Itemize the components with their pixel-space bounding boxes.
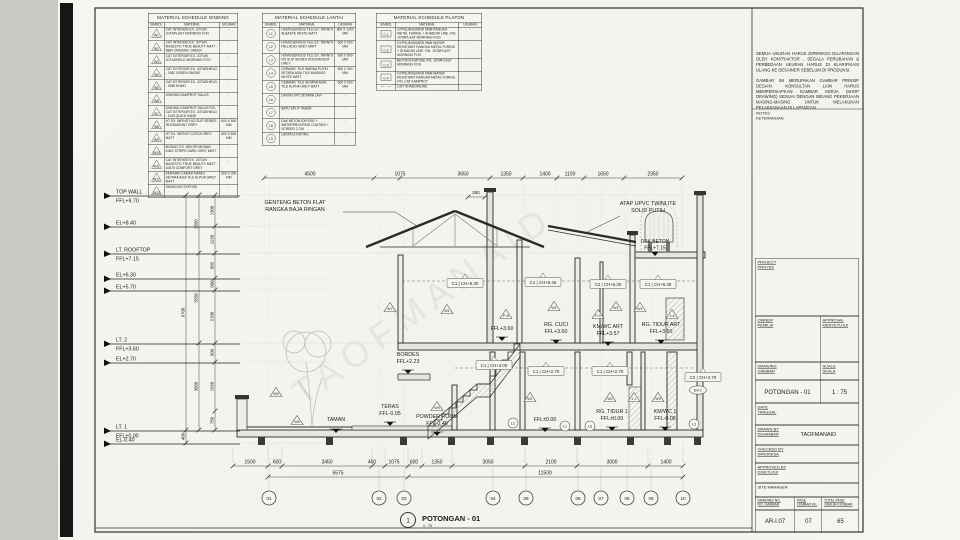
schedule-size: - <box>220 106 238 119</box>
dimension-value: 400 <box>181 432 186 440</box>
material-tag: W9 <box>655 397 660 401</box>
room-name: RG. TIDUR 1 <box>596 409 627 415</box>
room-ffl: FFL-0.40 <box>426 421 448 427</box>
garden-wall-cap <box>235 395 249 399</box>
owner-label-id: PEMILIK <box>758 323 774 328</box>
schedule-material: HT EX. INFINITI NO SLIP SERIES ROCKMOUNT… <box>164 119 219 132</box>
svg-text:W1: W1 <box>154 34 159 38</box>
material-tag: L6 <box>588 424 592 428</box>
dimension-value: 3000 <box>606 460 617 466</box>
grid-bubble-label: 08 <box>624 496 630 501</box>
schedule-row: L7 BATU SPLIT TABUR - <box>262 106 356 119</box>
approval-label-en: APPROVAL <box>823 318 844 323</box>
schedule-symbol: W11 <box>148 158 164 171</box>
room-name: BORDES <box>397 352 420 358</box>
schedule-row: W13 SKIMCOAT EXPOSE - <box>148 185 238 198</box>
approved-by-label-id: DISETUJUI <box>758 470 779 475</box>
schedule-row: W10 MOSAIC EX. DEKOR MOSAIC KING STRIPE … <box>148 145 238 158</box>
level-value: EL+5.70 <box>116 285 136 291</box>
schedule-size: 600 X 600 MM <box>335 53 356 66</box>
total-page-value: 65 <box>822 518 859 525</box>
schedule-row: L8 DAK BETON EXPOSE + WATERPROOFING COAT… <box>262 119 356 132</box>
material-tag: W2 <box>607 397 612 401</box>
room-ffl: FFL±0.00 <box>534 417 557 423</box>
schedule-symbol: W7 <box>148 106 164 119</box>
schedule-material: CAT INTERIOR EX. JOTUN MAJESTIC TRUE BEA… <box>164 158 219 171</box>
schedule-size: - <box>458 41 481 58</box>
drawing-label-en: DRAWING <box>758 364 777 369</box>
schedule-material: DAK BETON EXPOSE + WATERPROOFING COATING… <box>280 119 335 132</box>
schedule-row: L2 HOMOGENOUS TILE EX. INFINITI PALLADIO… <box>262 40 356 53</box>
schedule-size: - <box>220 40 238 53</box>
page-label-en: PAGE <box>797 499 806 503</box>
date-label-en: DATE <box>758 405 768 410</box>
checked-by-label-id: DIPERIKSA <box>758 452 779 457</box>
level-value: FFL+7.15 <box>116 257 139 263</box>
level-arrow <box>104 224 111 231</box>
room-name: RG. CUCI <box>544 322 568 328</box>
schedule-size: - <box>335 93 356 106</box>
schedule-symbol: L7 <box>262 106 280 119</box>
schedule-row: W5 CAT EXTERIOR EX. JOTASHIELD - 7658 KH… <box>148 80 238 93</box>
schedule-size: - <box>220 54 238 67</box>
dimension-value: 4500 <box>304 172 315 178</box>
material-tag: P-8 <box>503 314 509 318</box>
schedule-size: - <box>220 145 238 158</box>
room-name: KM/WC ART <box>593 324 624 330</box>
dimension-value: 600 <box>410 460 419 466</box>
room-name: POWDER ROOM <box>416 414 458 420</box>
roof-left-label-2: RANGKA BAJA RINGAN <box>265 207 325 213</box>
svg-text:C-4: C-4 <box>384 76 389 80</box>
schedule-row: C-4 GYPSUM BOARD 9MM WATER RESISTANT RAN… <box>376 71 482 84</box>
level-arrow <box>104 441 111 448</box>
dak-slab <box>630 252 705 258</box>
dimension-value: 1300 <box>210 205 215 215</box>
grid-bubble-label: 09 <box>648 496 654 501</box>
svg-text:W3: W3 <box>154 60 159 64</box>
schedule-material: CAT EXTERIOR EX. JOTUN JOTASHIELD MORNIN… <box>164 54 219 67</box>
roof-left-leader <box>343 212 417 226</box>
date-box: DATETANGGAL <box>755 403 859 425</box>
level2-slab <box>398 343 703 350</box>
ffl-marker <box>405 370 412 374</box>
svg-text:W2: W2 <box>154 47 159 51</box>
dimension-value: 2100 <box>545 460 556 466</box>
svg-text:C-2: C-2 <box>384 48 389 52</box>
schedule-material: CERAMIC TILE WARNA PUTIH SETARA ASIA TIL… <box>280 67 335 80</box>
room-ffl: FFL+3.60 <box>491 326 514 332</box>
level-arrow <box>104 251 111 258</box>
schedule-size: - <box>220 185 238 198</box>
svg-text:W6: W6 <box>154 99 159 103</box>
scale-label-id: SKALA <box>823 369 836 374</box>
level-arrow <box>104 288 111 295</box>
ceiling-tag: C2 | CH+2.70 <box>690 375 717 380</box>
material-tag: W9 <box>434 406 439 410</box>
schedule-material: CAT EXTERIOR EX. JOTASHIELD - 7682 GREEN… <box>164 67 219 80</box>
schedule-material: SKIMCOAT EXPOSE <box>164 185 219 198</box>
dimension-value: 1350 <box>500 172 511 178</box>
svg-text:L9: L9 <box>269 137 273 141</box>
schedule-row: L1 HOMOGENOUS TILE EX. INFINITI ALBASTE … <box>262 27 356 40</box>
title-block-column: SEMUA UKURAN HARUS DIPERIKSA DILAPANGAN … <box>752 8 863 532</box>
sheet-number-header-box: DRAWING NO.NO. GAMBAR PAGELEMBAR KE- TOT… <box>755 497 859 510</box>
material-schedule-plafon: MATERIAL SCHEDULE PLAFONSIMBOLMATERIALUK… <box>376 13 482 90</box>
wall-cap-dak <box>627 231 638 235</box>
page-value: 07 <box>795 518 822 525</box>
schedule-material: BATU SPLIT TABUR <box>280 106 335 119</box>
dimension-value: 1075 <box>388 460 399 466</box>
svg-text:L8: L8 <box>269 124 273 128</box>
schedule-size: - <box>220 67 238 80</box>
dimension-value: 1950 <box>210 381 215 391</box>
site-manager-label: SITE MANAGER <box>758 485 788 490</box>
material-tag: W1 <box>613 306 618 310</box>
schedule-row: W1 CAT INTERIOR EX. JOTUN JOTAPLAST MORN… <box>148 27 238 40</box>
schedule-symbol: W5 <box>148 80 164 93</box>
svg-text:W13: W13 <box>153 191 160 195</box>
drawing-title: 1 POTONGAN - 01 1 : 75 <box>401 513 481 529</box>
dimension-value: 1250 <box>210 234 215 244</box>
schedule-size: - <box>335 106 356 119</box>
schedule-symbol: L2 <box>262 40 280 53</box>
schedule-symbol: W13 <box>148 185 164 198</box>
drawing-title-scale: 1 : 75 <box>423 524 432 528</box>
owner-label-en: OWNER <box>758 318 773 323</box>
material-tag: L1 <box>511 421 515 425</box>
drawing-title-name: POTONGAN - 01 <box>422 514 480 523</box>
svg-text:L4: L4 <box>269 71 273 75</box>
level-value: EL+2.70 <box>116 357 136 363</box>
roof-right-leader <box>587 216 620 232</box>
svg-text:W7: W7 <box>154 112 159 116</box>
material-tag: L3 <box>692 422 696 426</box>
schedule-size: - <box>458 84 481 90</box>
ceiling-tag: C1 | CH+6.30 <box>452 281 479 286</box>
svg-text:L2: L2 <box>269 45 273 49</box>
schedule-size: - <box>220 80 238 93</box>
garden-wall <box>237 399 247 430</box>
schedule-row: W9 HT EX. INFINITI COSTA GREY MATT 600 X… <box>148 132 238 145</box>
svg-text:W4: W4 <box>154 73 159 77</box>
material-tag: W1 <box>637 307 642 311</box>
bordes-slab <box>398 374 430 380</box>
schedule-row: W11 CAT INTERIOR EX. JOTUN MAJESTIC TRUE… <box>148 158 238 171</box>
room-ffl: FFL-0.05 <box>654 416 676 422</box>
room-ffl: FFL+2.23 <box>397 359 420 365</box>
schedule-symbol: L8 <box>262 119 280 132</box>
project-box: PROJECTPROYEK <box>755 258 859 316</box>
dimension-value: 2350 <box>647 172 658 178</box>
schedule-material: CAT EXTERIOR EX. JOTASHIELD - 7658 KHAKI <box>164 80 219 93</box>
schedule-size: 800 X 1200 MM <box>335 27 356 40</box>
svg-text:W8: W8 <box>154 125 159 129</box>
ceiling-tag: C1 | CH+6.30 <box>645 282 672 287</box>
dimension-value: 11500 <box>538 471 552 477</box>
grid-bubble-label: 04 <box>490 496 496 501</box>
approved-by-box: APPROVED BYDISETUJUI <box>755 463 859 483</box>
schedule-symbol: — · — <box>376 84 396 90</box>
schedule-material: DINDING KAMPROT HALUS FIN. CAT EXTERIOR … <box>164 106 219 119</box>
schedule-size: - <box>335 119 356 132</box>
material-tag: W1 <box>527 397 532 401</box>
material-tag: W7 <box>387 307 392 311</box>
checked-by-label-en: CHECKED BY <box>758 447 784 452</box>
schedule-size: - <box>335 132 356 145</box>
note-paragraph: SEMUA UKURAN HARUS DIPERIKSA DILAPANGAN … <box>756 51 859 73</box>
schedule-title: MATERIAL SCHEDULE LANTAI <box>262 13 356 22</box>
dimension-value: 3550 <box>194 293 199 303</box>
svg-text:W12: W12 <box>153 178 160 182</box>
schedule-header: UKURAN <box>220 22 238 27</box>
dimension-value: 9700 <box>181 307 186 317</box>
schedule-symbol: C-3 <box>376 58 396 71</box>
ceiling-tag-arrow <box>655 275 661 280</box>
dimension-value: 450 <box>368 460 377 466</box>
schedule-material: BETON EKSPOSE FIN. JOTAPLAST MORNING FOG <box>396 58 458 71</box>
schedule-material: GYPSUM BOARD 9MM WATER RESISTANT RANGKA … <box>396 71 458 84</box>
dak-label-2: FFL+7.15 <box>644 246 666 252</box>
schedule-header: SIMBOL <box>148 22 164 27</box>
dimension-value: 2100 <box>210 311 215 321</box>
level-value: FFL+9.70 <box>116 199 139 205</box>
schedule-symbol: W10 <box>148 145 164 158</box>
schedule-size: - <box>458 27 481 40</box>
sheet-number-value-box: AR-I.07 07 65 <box>755 510 859 532</box>
schedule-row: — · — LIST SHADOWLINE - <box>376 84 482 90</box>
schedule-symbol: W1 <box>148 27 164 40</box>
wall-cap-mid <box>484 188 496 192</box>
schedule-row: L5 CERAMIC TILE SETARA ASIA TILE ALPHA G… <box>262 80 356 93</box>
schedule-row: W7 DINDING KAMPROT HALUS FIN. CAT EXTERI… <box>148 106 238 119</box>
schedule-row: W8 HT EX. INFINITI NO SLIP SERIES ROCKMO… <box>148 119 238 132</box>
dimension-value: 600 <box>210 280 215 288</box>
svg-text:W9: W9 <box>154 138 159 142</box>
project-label-en: PROJECT <box>758 260 777 265</box>
grid-bubble-label: 07 <box>598 496 604 501</box>
project-label-id: PROYEK <box>758 265 775 270</box>
dak-label-1: DAK BETON <box>641 239 670 245</box>
level-arrow <box>104 360 111 367</box>
schedule-size: 600 X 600 MM <box>335 80 356 93</box>
schedule-row: W3 CAT EXTERIOR EX. JOTUN JOTASHIELD MOR… <box>148 54 238 67</box>
drawing-scale-value-box: POTONGAN - 01 1 : 75 <box>755 380 859 403</box>
schedule-row: L9 LANTAI EXISTING - <box>262 132 356 145</box>
drawing-scale-header-box: DRAWINGGAMBAR SCALESKALA <box>755 362 859 380</box>
grid-bubble-label: 02 <box>376 496 382 501</box>
drawing-title-number: 1 <box>406 518 410 525</box>
schedule-material: LANTAI EXISTING <box>280 132 335 145</box>
drawn-by-box: DRAWN BYDIGAMBAR TAOFMANAID <box>755 425 859 445</box>
svg-text:W11: W11 <box>153 164 160 168</box>
dimension-value: 850 <box>210 261 215 269</box>
schedule-row: C-1 GYPSUM BOARD 9MM RANGKA METAL FURING… <box>376 27 482 40</box>
schedule-size: 600 X 600 MM <box>220 119 238 132</box>
room-ffl: FFL+3.60 <box>545 329 568 335</box>
dimension-value: 1100 <box>565 172 576 178</box>
roof-right-label-2: SOLID PUTIH <box>631 208 665 214</box>
dimension-value: 350 <box>472 190 480 195</box>
level-name: LT. 1 <box>116 425 127 431</box>
svg-text:W10: W10 <box>153 151 160 155</box>
level-name: LT. 2 <box>116 338 127 344</box>
schedule-symbol: L1 <box>262 27 280 40</box>
dimension-value: 1400 <box>539 172 550 178</box>
schedule-symbol: W2 <box>148 40 164 53</box>
room-name: TERAS <box>381 404 399 410</box>
note-paragraph: GAMBAR INI MERUPAKAN GAMBAR PRINSIP DESA… <box>756 78 859 111</box>
drawing-no-value: AR-I.07 <box>756 518 795 525</box>
dimension-value: 750 <box>210 416 215 424</box>
svg-text:C-1: C-1 <box>384 33 389 37</box>
schedule-symbol: L5 <box>262 80 280 93</box>
schedule-size: - <box>458 58 481 71</box>
schedule-material: GYPSUM BOARD 9MM WATER RESISTANT RANGKA … <box>396 41 458 58</box>
schedule-row: W6 DINDING KAMPROT HALUS - <box>148 93 238 106</box>
schedule-material: MOSAIC EX. DEKOR MOSAIC KING STRIPE DARK… <box>164 145 219 158</box>
room-ffl: FFL+3.57 <box>597 331 620 337</box>
scale-value: 1 : 75 <box>821 389 859 396</box>
ceiling-tag-arrow <box>540 273 546 278</box>
svg-text:L5: L5 <box>269 85 273 89</box>
schedule-row: W4 CAT EXTERIOR EX. JOTASHIELD - 7682 GR… <box>148 67 238 80</box>
drawn-by-value: TAOFMANAID <box>801 432 837 438</box>
material-tag: P-9 <box>595 314 601 318</box>
checked-by-box: CHECKED BYDIPERIKSA <box>755 445 859 463</box>
material-tag: W1 <box>551 306 556 310</box>
schedule-symbol: W12 <box>148 171 164 184</box>
schedule-symbol: L3 <box>262 53 280 66</box>
site-manager-box: SITE MANAGER <box>755 483 859 497</box>
level-arrow <box>104 341 111 348</box>
dimension-value: 3600 <box>194 381 199 391</box>
svg-text:L7: L7 <box>269 111 273 115</box>
material-tag: L1 <box>563 424 567 428</box>
ceiling-tag: C2 | CH+6.30 <box>595 282 622 287</box>
schedule-size: - <box>220 27 238 40</box>
material-tag: W6 <box>294 420 299 424</box>
svg-text:W5: W5 <box>154 86 159 90</box>
material-tag: W6 <box>273 392 278 396</box>
room-name: RG. TIDUR ART <box>642 322 681 328</box>
wall-cap-right <box>694 191 706 195</box>
drawing-label-id: GAMBAR <box>758 369 775 374</box>
dimension-value: 1650 <box>597 172 608 178</box>
door-j1 <box>629 387 641 430</box>
notes-label-id: KETERANGAN <box>756 116 784 121</box>
svg-text:L3: L3 <box>269 58 273 62</box>
ground-slab <box>237 430 703 437</box>
schedule-material: CAT INTERIOR EX. JOTUN MAJESTIC TRUE BEA… <box>164 40 219 53</box>
ffl-marker <box>387 422 394 426</box>
schedule-size: 600 X 300 MM <box>335 67 356 80</box>
schedule-symbol: L6 <box>262 93 280 106</box>
schedule-symbol: C-2 <box>376 41 396 58</box>
room-ffl: FFL±0.00 <box>601 416 624 422</box>
schedule-symbol: W6 <box>148 93 164 106</box>
level-arrow <box>104 193 111 200</box>
room-name: KM/WC 1 <box>654 409 677 415</box>
dimension-value: 1400 <box>660 460 671 466</box>
scale-label-en: SCALE <box>823 364 836 369</box>
svg-text:L6: L6 <box>269 98 273 102</box>
schedule-row: L6 LANTAI SPC SETARA LAVI - <box>262 93 356 106</box>
schedule-row: W12 KERAMIK KAMAR MANDI SETARA ASIA TILE… <box>148 171 238 184</box>
generated-annotations: 4500107536501350140011001650235035015006… <box>104 172 721 506</box>
dimension-value: 3650 <box>457 172 468 178</box>
grid-bubble-label: 03 <box>401 496 407 501</box>
schedule-material: KERAMIK KAMAR MANDI SETARA ASIA TILE ALP… <box>164 171 219 184</box>
date-label-id: TANGGAL <box>758 410 777 415</box>
schedule-row: C-3 BETON EKSPOSE FIN. JOTAPLAST MORNING… <box>376 58 482 71</box>
ffl-marker <box>499 337 506 341</box>
material-schedule-lantai: MATERIAL SCHEDULE LANTAISIMBOLMATERIALUK… <box>262 13 356 146</box>
level-value: EL+8.40 <box>116 221 136 227</box>
schedule-material: CERAMIC TILE SETARA ASIA TILE ALPHA GREY… <box>280 80 335 93</box>
level-arrow <box>104 428 111 435</box>
schedule-row: L4 CERAMIC TILE WARNA PUTIH SETARA ASIA … <box>262 67 356 80</box>
ceiling-tag: C1 | CH+2.70 <box>533 369 560 374</box>
dimension-value: 1350 <box>431 460 442 466</box>
schedule-material: CAT INTERIOR EX. JOTUN JOTAPLAST MORNING… <box>164 27 219 40</box>
level-arrow <box>104 276 111 283</box>
schedule-size: 600 X 600 MM <box>335 40 356 53</box>
roof-right <box>548 226 636 246</box>
schedule-size: - <box>220 158 238 171</box>
schedule-material: HT EX. INFINITI COSTA GREY MATT <box>164 132 219 145</box>
approval-label-id: MENYETUJUI <box>823 323 849 328</box>
grid-bubble-label: 10 <box>680 496 686 501</box>
schedule-symbol: W8 <box>148 119 164 132</box>
ceiling-tag: C1 | CH+3.00 <box>481 363 508 368</box>
dimension-value: 1500 <box>244 460 255 466</box>
owner-approval-box: OWNERPEMILIK APPROVALMENYETUJUI <box>755 316 859 362</box>
total-page-label-en: TOTAL PAGE <box>824 499 845 503</box>
material-schedule-dinding: MATERIAL SCHEDULE DINDINGSIMBOLMATERIALU… <box>148 13 238 198</box>
schedule-row: W2 CAT INTERIOR EX. JOTUN MAJESTIC TRUE … <box>148 40 238 53</box>
schedule-table: MATERIAL SCHEDULE PLAFONSIMBOLMATERIALUK… <box>376 13 482 90</box>
schedule-material: GYPSUM BOARD 9MM RANGKA METAL FURING + S… <box>396 27 458 40</box>
ceiling-tag-arrow <box>543 362 549 367</box>
dimension-value: 3450 <box>321 460 332 466</box>
dimension-value: 900 <box>210 348 215 356</box>
level-value: FFL+3.60 <box>116 347 139 353</box>
schedule-material: LANTAI SPC SETARA LAVI <box>280 93 335 106</box>
dimension-value: 1075 <box>394 172 405 178</box>
material-tag: W1 <box>444 309 449 313</box>
schedule-size: - <box>458 71 481 84</box>
schedule-title: MATERIAL SCHEDULE PLAFON <box>376 13 482 22</box>
schedule-symbol: C-4 <box>376 71 396 84</box>
schedule-symbol: W9 <box>148 132 164 145</box>
svg-text:L1: L1 <box>269 32 273 36</box>
material-tag: J-4 <box>670 314 675 318</box>
room-name: TAMAN <box>327 417 345 423</box>
schedule-size: - <box>220 93 238 106</box>
schedule-table: MATERIAL SCHEDULE LANTAISIMBOLMATERIALUK… <box>262 13 356 146</box>
ceiling-tag-arrow <box>607 362 613 367</box>
schedule-row: C-2 GYPSUM BOARD 9MM WATER RESISTANT RAN… <box>376 41 482 58</box>
level-value: EL+6.30 <box>116 273 136 279</box>
schedule-row: L3 HOMOGENOUS TILE EX. INFINITI NO SLIP … <box>262 53 356 66</box>
drawing-no-label-en: DRAWING NO. <box>758 499 781 503</box>
schedule-size: 600 X 600 MM <box>220 132 238 145</box>
level-value: EL-0.40 <box>116 438 135 444</box>
schedule-title: MATERIAL SCHEDULE DINDING <box>148 13 238 22</box>
level-name: TOP WALL <box>116 190 142 196</box>
material-tag: BV-1 <box>694 388 702 392</box>
